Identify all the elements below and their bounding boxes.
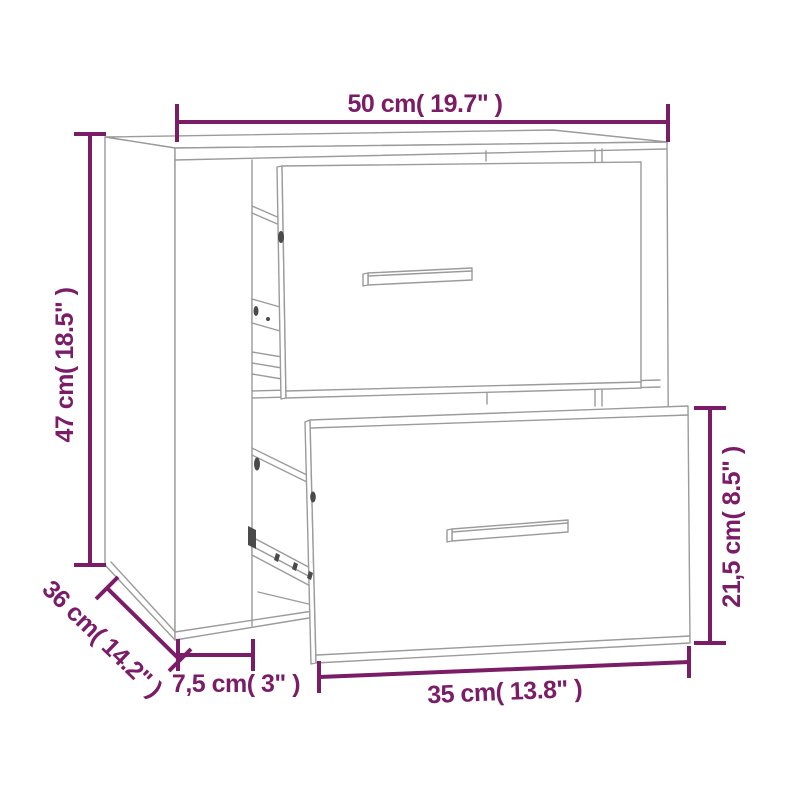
bottom-drawer [305,406,690,664]
top-drawer-handle-end-cap [363,273,368,286]
screw-hole [278,231,284,243]
top-drawer [277,162,641,399]
screw-hole [310,492,316,503]
product-dimension-diagram: 50 cm( 19.7" ) 47 cm( 18.5" ) 36 cm( 14.… [0,0,800,800]
label-drawer-width: 35 cm( 13.8" ) [427,675,583,709]
label-side-panel: 7,5 cm( 3" ) [172,670,300,698]
label-overall-width: 50 cm( 19.7" ) [348,90,503,118]
cabinet-dimension-drawing: 50 cm( 19.7" ) 47 cm( 18.5" ) 36 cm( 14.… [0,0,800,800]
dimension-side-panel-line [178,639,253,671]
bottom-drawer-handle-end-cap [447,529,452,542]
slide-bracket [248,526,256,549]
label-overall-height: 47 cm( 18.5" ) [51,287,79,442]
label-drawer-height: 21,5 cm( 8.5" ) [718,446,746,608]
screw-hole [254,306,259,316]
screw-hole [266,317,270,321]
screw-hole [254,458,260,471]
cabinet-left-side-panel [105,137,175,640]
cabinet-outline [105,130,690,664]
